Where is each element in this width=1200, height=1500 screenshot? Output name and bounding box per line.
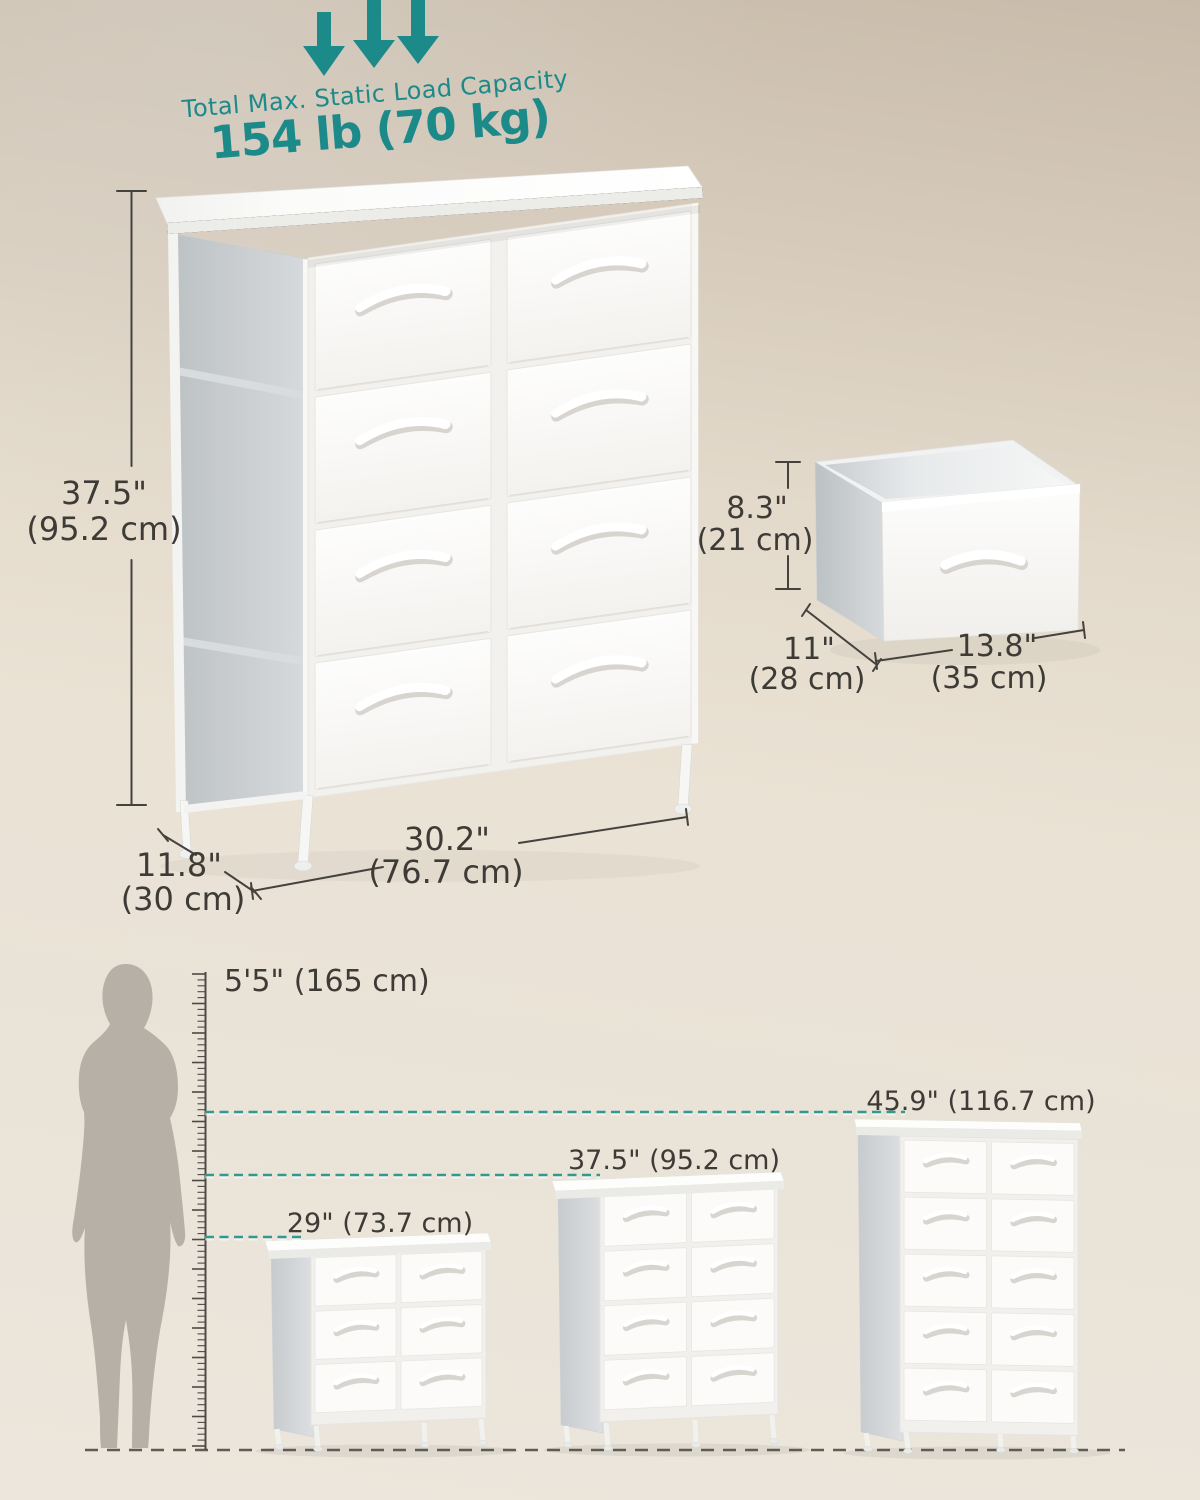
down-arrow-icon [353, 0, 395, 68]
woman-silhouette [72, 964, 185, 1448]
load-capacity-arrow-icons [303, 0, 439, 76]
down-arrow-icon [397, 0, 439, 64]
infographic-artwork [0, 0, 1200, 1500]
product-dimension-infographic: Total Max. Static Load Capacity 154 lb (… [0, 0, 1200, 1500]
main-dresser-illustration [156, 166, 703, 882]
main-width-cm: (76.7 cm) [368, 853, 523, 891]
model-29in-label: 29" (73.7 cm) [287, 1208, 473, 1239]
model-29in-dresser-illustration [255, 1233, 518, 1458]
drawer-width-inches: 13.8" [957, 629, 1038, 664]
drawer-height-cm: (21 cm) [697, 523, 814, 558]
model-45in-dresser-illustration [844, 1119, 1111, 1460]
down-arrow-icon [303, 12, 345, 76]
height-ruler [192, 972, 206, 1450]
drawer-width-cm: (35 cm) [931, 661, 1048, 696]
main-depth-cm: (30 cm) [121, 880, 246, 918]
model-37in-dresser-illustration [544, 1172, 811, 1457]
model-45in-label: 45.9" (116.7 cm) [866, 1086, 1095, 1117]
drawer-depth-cm: (28 cm) [749, 662, 866, 697]
drawer-height-inches: 8.3" [726, 491, 788, 526]
main-height-inches: 37.5" [61, 474, 147, 512]
model-37in-label: 37.5" (95.2 cm) [568, 1145, 780, 1176]
main-depth-inches: 11.8" [136, 846, 222, 884]
person-height-label: 5'5" (165 cm) [224, 964, 430, 999]
main-height-cm: (95.2 cm) [26, 510, 181, 548]
